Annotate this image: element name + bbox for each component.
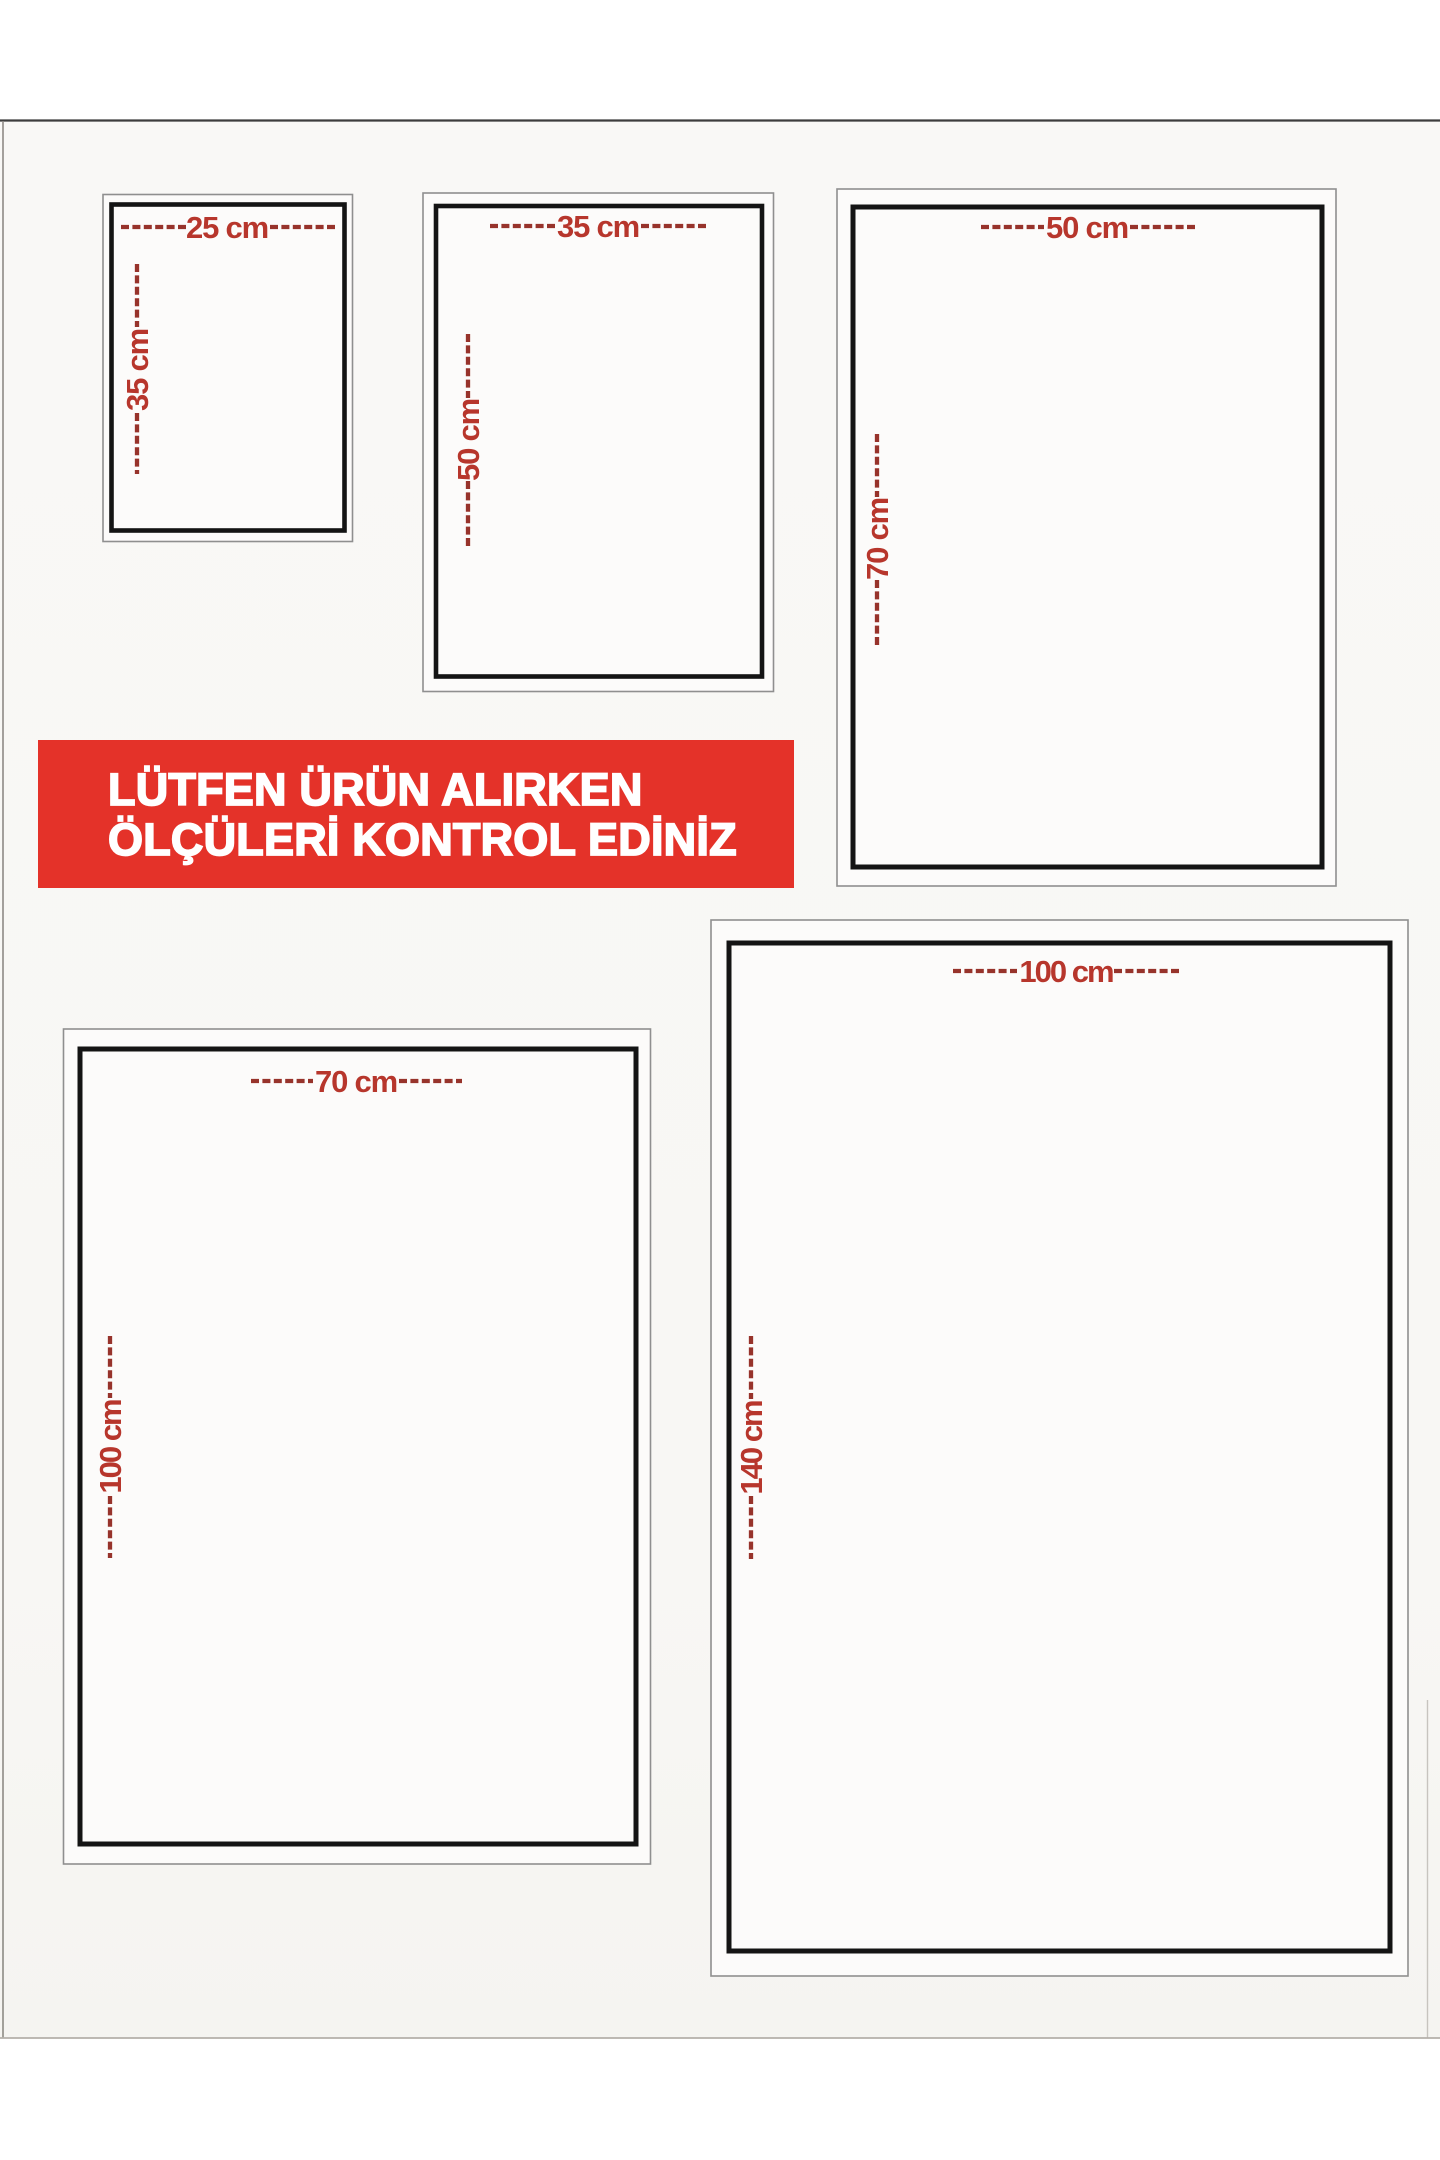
svg-text:70 cm: 70 cm <box>860 498 895 580</box>
svg-text:35 cm: 35 cm <box>557 209 639 244</box>
svg-text:100 cm: 100 cm <box>93 1400 128 1494</box>
svg-text:100 cm: 100 cm <box>1019 954 1113 989</box>
svg-text:ÖLÇÜLERİ KONTROL EDİNİZ: ÖLÇÜLERİ KONTROL EDİNİZ <box>108 814 737 865</box>
svg-text:70 cm: 70 cm <box>315 1064 397 1099</box>
svg-text:50 cm: 50 cm <box>1046 210 1128 245</box>
svg-text:LÜTFEN ÜRÜN ALIRKEN: LÜTFEN ÜRÜN ALIRKEN <box>108 764 643 815</box>
svg-text:35 cm: 35 cm <box>120 329 155 411</box>
svg-text:140 cm: 140 cm <box>734 1401 769 1495</box>
svg-text:25 cm: 25 cm <box>186 210 268 245</box>
svg-text:50 cm: 50 cm <box>451 399 486 481</box>
